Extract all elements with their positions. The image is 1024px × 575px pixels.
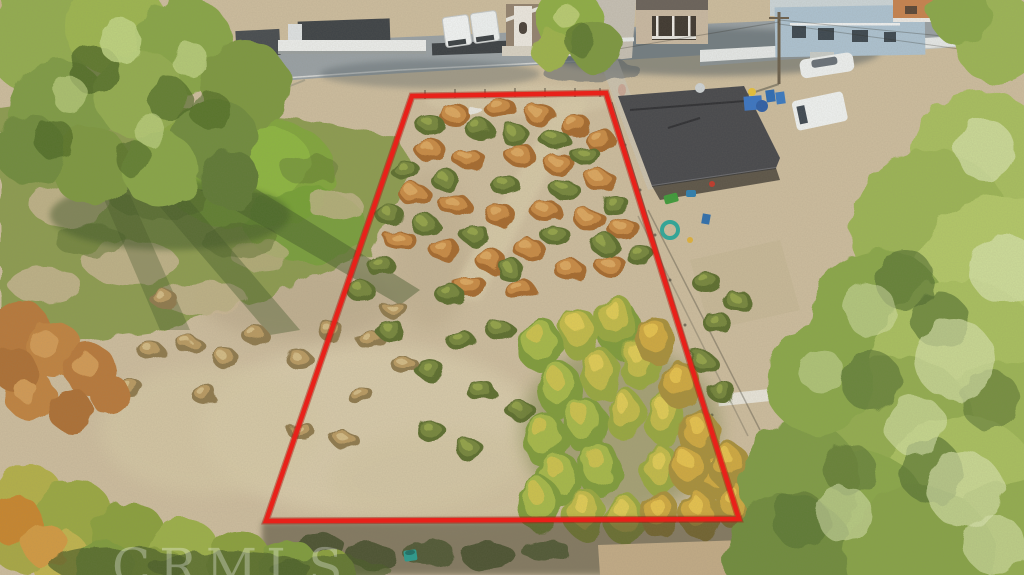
photo-grain: [0, 0, 1024, 575]
aerial-photo: CRMLS: [0, 0, 1024, 575]
watermark-text: CRMLS: [112, 538, 352, 575]
